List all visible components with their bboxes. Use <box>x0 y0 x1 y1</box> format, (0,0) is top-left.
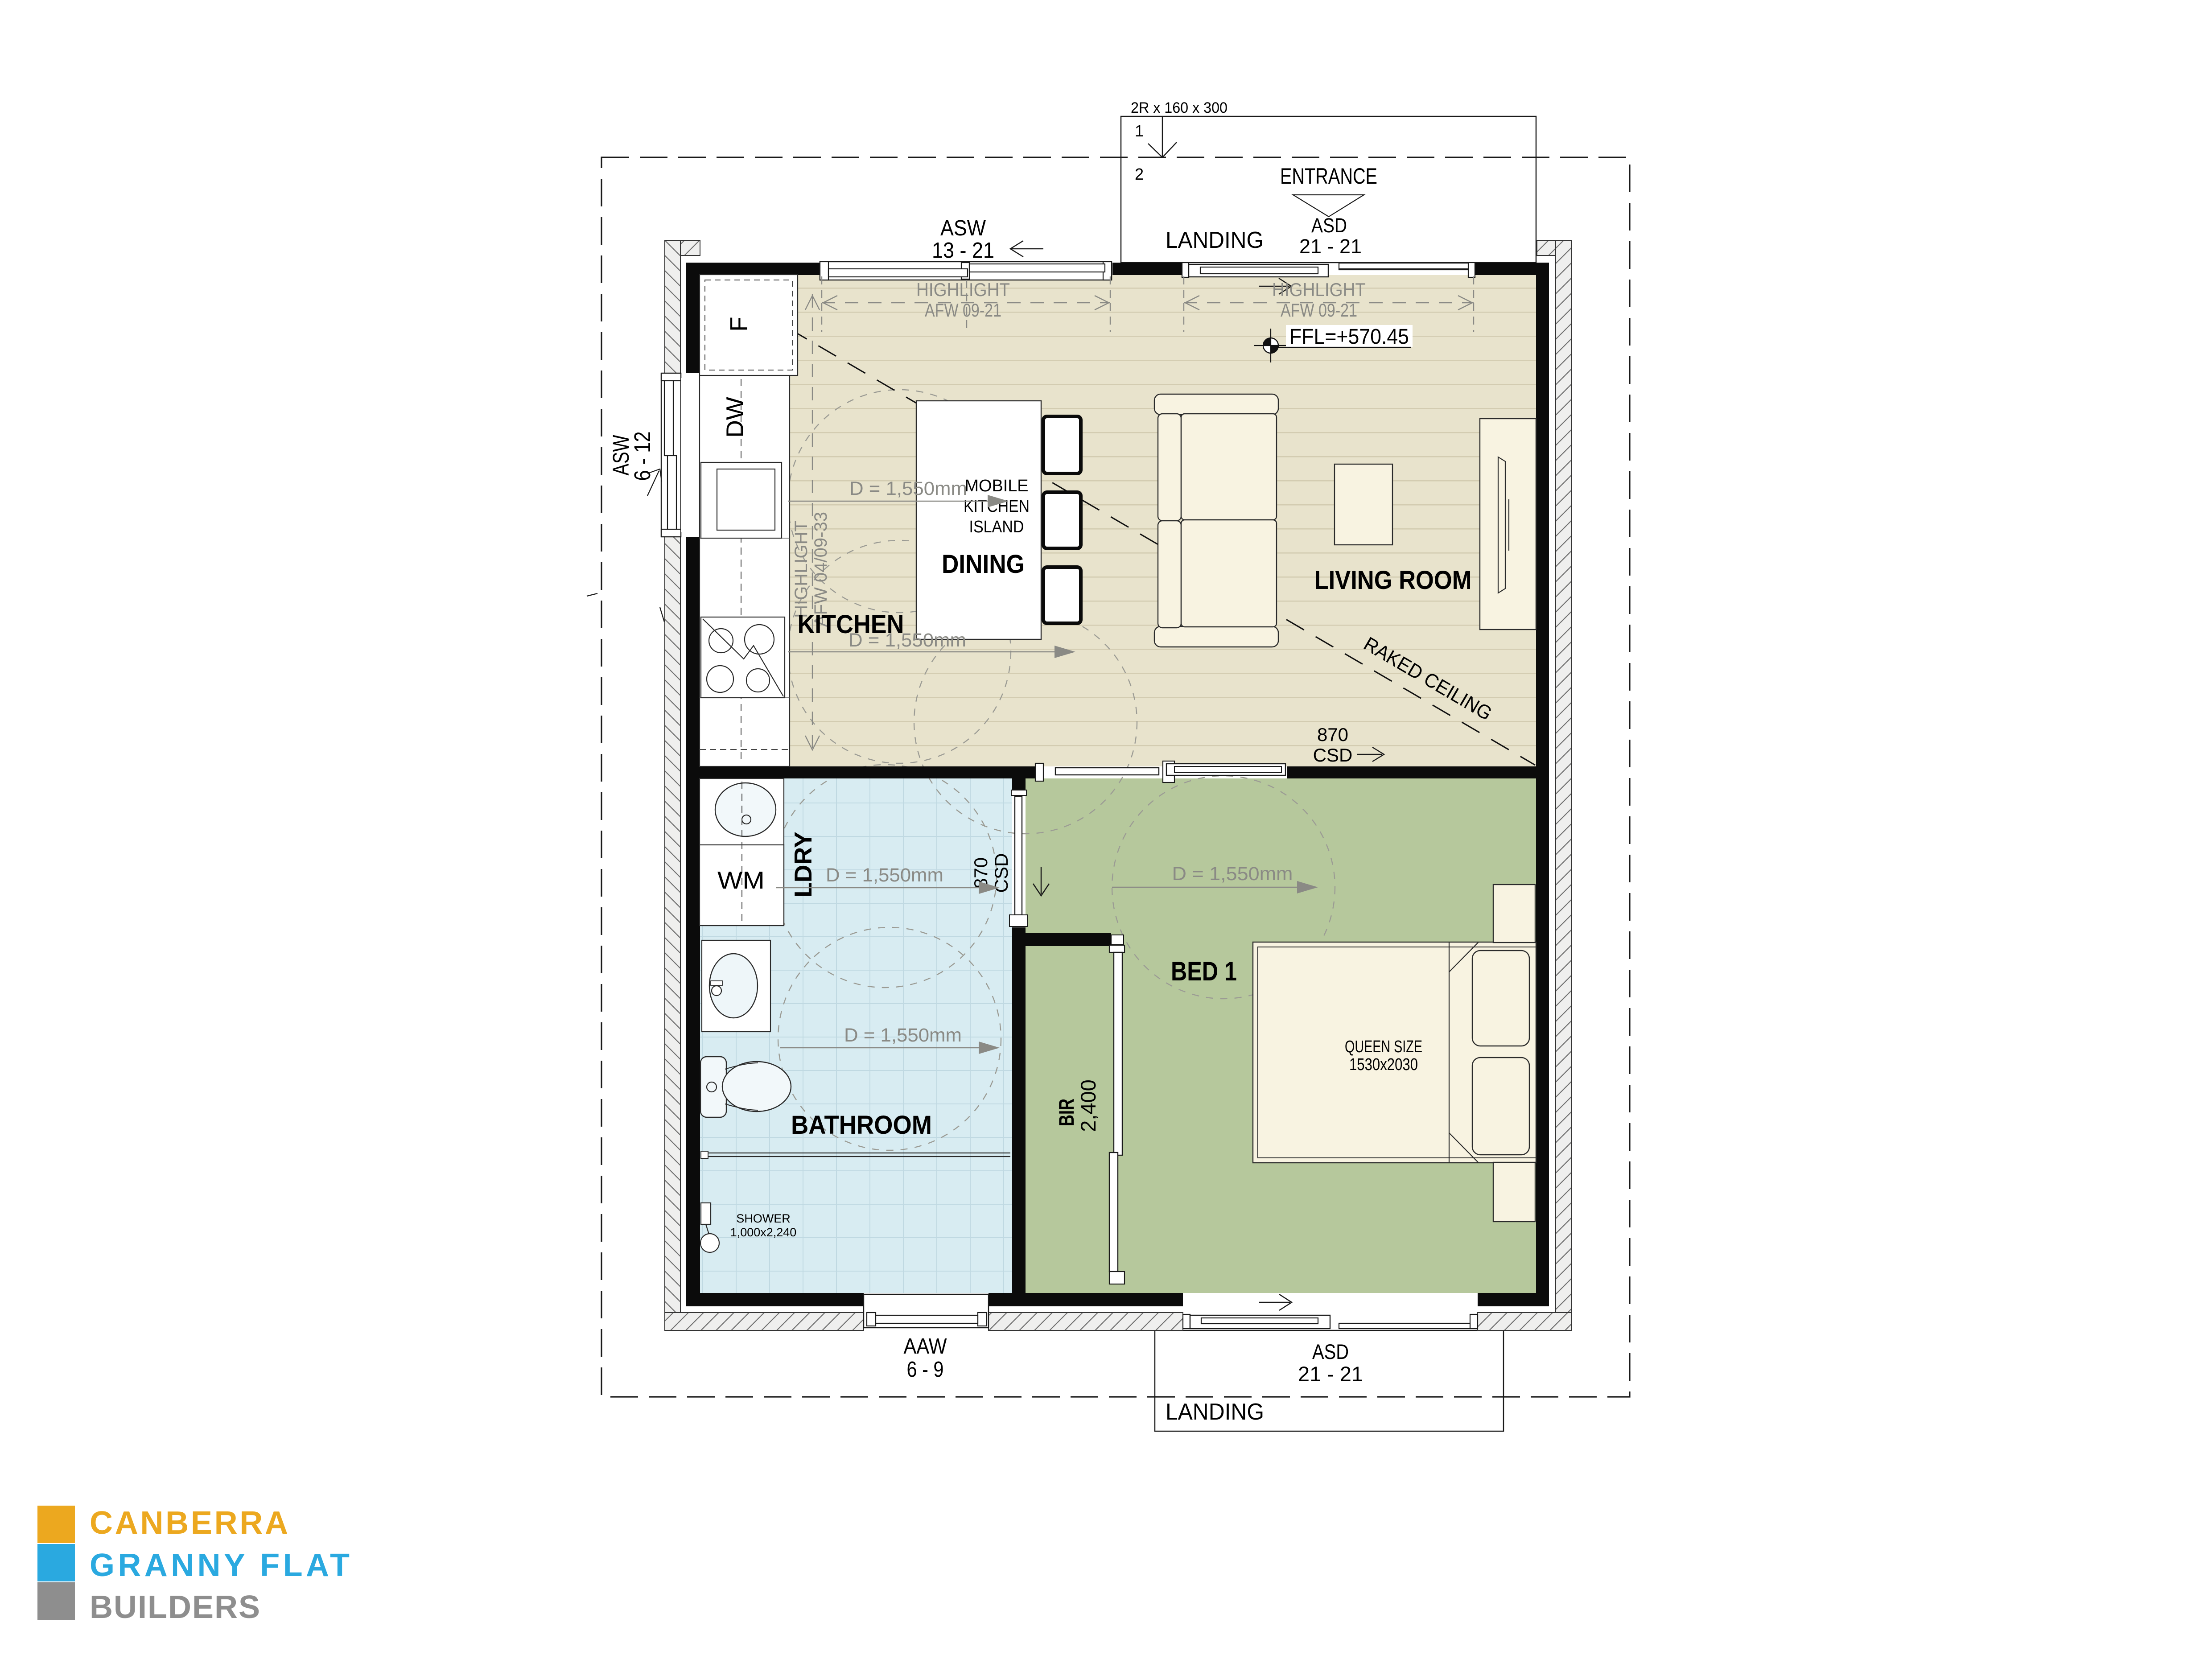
svg-text:ASW: ASW <box>940 216 986 240</box>
svg-text:LIVING ROOM: LIVING ROOM <box>1314 566 1472 595</box>
svg-text:21 - 21: 21 - 21 <box>1299 235 1362 258</box>
svg-text:D = 1,550mm: D = 1,550mm <box>844 1025 962 1046</box>
svg-text:LANDING: LANDING <box>1166 227 1264 253</box>
svg-text:GRANNY FLAT: GRANNY FLAT <box>90 1548 350 1583</box>
svg-text:2: 2 <box>1135 165 1144 183</box>
svg-text:AFW 09-21: AFW 09-21 <box>1281 300 1357 321</box>
svg-text:13 - 21: 13 - 21 <box>932 239 994 263</box>
svg-text:D = 1,550mm: D = 1,550mm <box>1172 863 1293 885</box>
svg-text:BED 1: BED 1 <box>1171 956 1237 986</box>
svg-text:AAW: AAW <box>904 1334 947 1358</box>
svg-text:870: 870 <box>1317 724 1348 745</box>
svg-text:FFL=+570.45: FFL=+570.45 <box>1289 325 1409 349</box>
svg-text:D = 1,550mm: D = 1,550mm <box>849 478 967 499</box>
svg-text:HIGHLIGHT: HIGHLIGHT <box>791 521 811 618</box>
svg-text:1,000x2,240: 1,000x2,240 <box>730 1226 797 1239</box>
svg-text:6 - 12: 6 - 12 <box>630 432 655 481</box>
svg-text:HIGHLIGHT: HIGHLIGHT <box>916 279 1010 300</box>
svg-text:ISLAND: ISLAND <box>969 518 1024 536</box>
svg-text:WM: WM <box>717 866 765 894</box>
svg-text:SHOWER: SHOWER <box>736 1212 791 1225</box>
svg-text:BATHROOM: BATHROOM <box>791 1111 932 1140</box>
svg-text:BUILDERS: BUILDERS <box>90 1589 260 1625</box>
svg-text:MOBILE: MOBILE <box>965 477 1029 495</box>
svg-text:21 - 21: 21 - 21 <box>1298 1362 1363 1386</box>
svg-text:CSD: CSD <box>1313 745 1353 766</box>
svg-text:QUEEN SIZE: QUEEN SIZE <box>1345 1037 1422 1056</box>
svg-text:2R x 160 x 300: 2R x 160 x 300 <box>1131 99 1228 116</box>
svg-text:HIGHLIGHT: HIGHLIGHT <box>1272 279 1366 300</box>
svg-text:6 - 9: 6 - 9 <box>907 1358 944 1382</box>
svg-text:DW: DW <box>721 397 749 438</box>
svg-text:ASD: ASD <box>1312 1340 1349 1363</box>
svg-text:F: F <box>725 317 753 332</box>
svg-text:AFW 09-21: AFW 09-21 <box>925 300 1001 321</box>
svg-text:2,400: 2,400 <box>1076 1079 1100 1132</box>
svg-text:ASD: ASD <box>1311 214 1347 237</box>
svg-text:1530x2030: 1530x2030 <box>1349 1055 1418 1074</box>
svg-text:LANDING: LANDING <box>1166 1399 1264 1425</box>
svg-text:1: 1 <box>1135 122 1144 140</box>
svg-text:D = 1,550mm: D = 1,550mm <box>849 630 966 651</box>
svg-text:ENTRANCE: ENTRANCE <box>1280 164 1377 189</box>
svg-text:BIR: BIR <box>1055 1099 1078 1126</box>
svg-text:D = 1,550mm: D = 1,550mm <box>826 864 943 886</box>
svg-text:DINING: DINING <box>942 550 1025 579</box>
